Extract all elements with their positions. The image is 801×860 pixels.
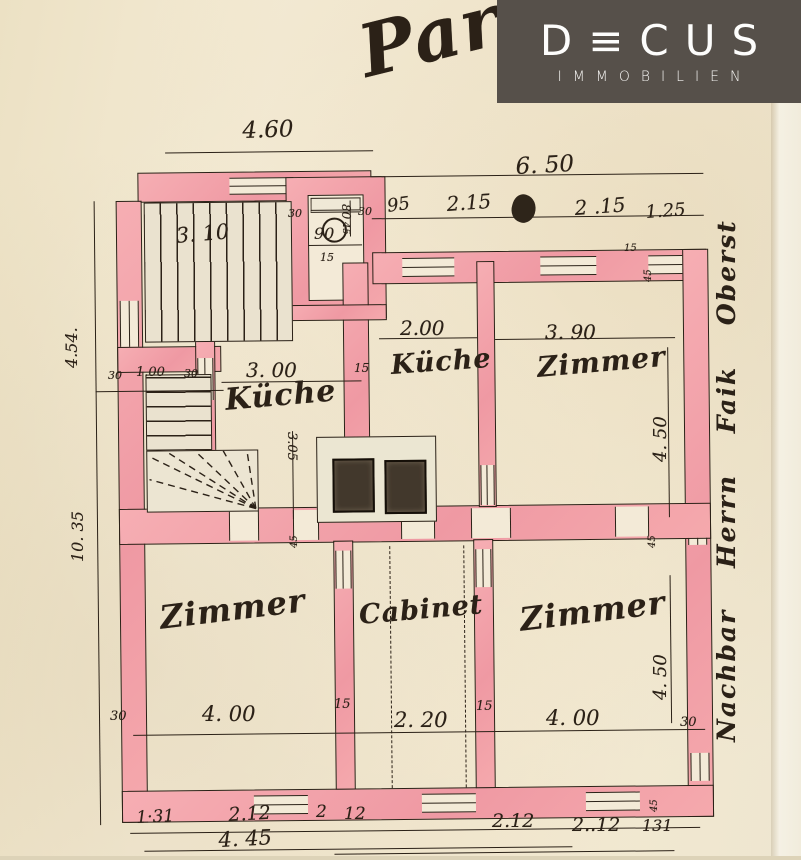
dim-label: 15 — [476, 700, 493, 713]
decus-logo: D≡CUS IMMOBILIEN — [497, 0, 801, 103]
dim-label: 3. 90 — [545, 322, 596, 342]
dim-label: 4. 00 — [202, 704, 255, 725]
dim-label: 95 — [386, 195, 411, 216]
dim-label: 80 — [340, 204, 352, 219]
dim-label: 45 — [650, 799, 660, 812]
dim-label: 4. 50 — [652, 416, 670, 462]
plan-title: Par — [352, 0, 508, 88]
dim-label: 2..12 — [572, 816, 620, 835]
dim-label: 15 — [320, 252, 334, 263]
dim-label: 30 — [358, 206, 372, 217]
dim-label: 4.60 — [242, 118, 294, 143]
dim-label: 6. 50 — [515, 153, 575, 179]
room-label: Cabinet — [358, 591, 484, 629]
dim-label: 4. 00 — [546, 708, 599, 729]
dim-label: 45 — [340, 222, 350, 235]
dim-label: 4. 50 — [652, 654, 670, 700]
dim-label: 30 — [288, 208, 302, 219]
dim-label: 2 — [316, 804, 327, 821]
dim-label: 1.00 — [136, 366, 165, 379]
dim-label: 10. 35 — [70, 511, 86, 562]
dim-label: 45 — [290, 535, 300, 548]
dim-label: 2.15 — [446, 191, 492, 214]
dim-label: 45 — [644, 269, 654, 282]
dim-label: 15 — [624, 244, 637, 254]
annotation-layer: Par4.606. 50952.152 .151.253. 1080303090… — [0, 0, 801, 856]
dim-label: 2.12 — [492, 812, 534, 831]
dim-label: 3. 10 — [175, 221, 230, 247]
dim-label: 30 — [108, 370, 122, 381]
dim-label: 2 .15 — [574, 194, 626, 218]
dim-label: 2. 20 — [394, 710, 447, 731]
dim-label: 3.05 — [285, 432, 298, 461]
dim-label: 1.25 — [645, 201, 686, 222]
room-label: Zimmer — [518, 586, 667, 636]
decus-subtitle: IMMOBILIEN — [558, 70, 752, 84]
dim-label: 12 — [344, 806, 366, 823]
room-label: Zimmer — [536, 343, 667, 382]
decus-wordmark: D≡CUS — [540, 20, 774, 62]
dim-label: 4. 45 — [218, 827, 272, 851]
dim-label: 45 — [648, 535, 658, 548]
dim-label: 131 — [642, 818, 673, 834]
dim-label: 2.00 — [400, 318, 445, 338]
side-note: Nachbar Herrn Faik Oberst — [714, 219, 739, 742]
room-label: Zimmer — [158, 584, 307, 634]
dim-label: 30 — [680, 716, 697, 729]
dim-label: 15 — [334, 698, 351, 711]
dim-label: 30 — [110, 710, 127, 723]
dim-label: 15 — [354, 362, 369, 374]
dim-label: 30 — [184, 368, 198, 379]
dim-label: 90 — [314, 226, 334, 242]
dim-label: 1·31 — [136, 808, 175, 827]
dim-label: 2.12 — [228, 804, 271, 825]
photographed-floor-plan: { "logo": { "brand": "DECUS", "wordmark"… — [0, 0, 801, 856]
dim-label: 4.54. — [64, 327, 80, 368]
room-label: Küche — [390, 345, 492, 379]
room-label: Küche — [224, 376, 338, 416]
